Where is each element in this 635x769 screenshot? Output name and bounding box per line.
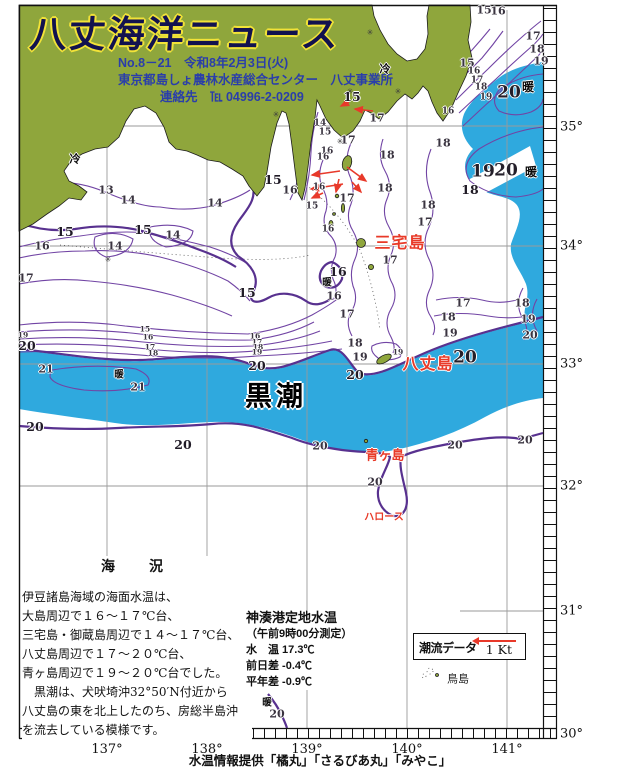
station-marker: ✳ — [337, 138, 344, 146]
contour-label: 17 — [382, 255, 397, 266]
warm-label: 暖 — [522, 81, 534, 93]
data-credit: 水温情報提供「橘丸」「さるびあ丸」「みやこ」 — [100, 750, 540, 769]
report-line: 青ヶ島周辺で１９～２０℃台でした。 — [22, 664, 252, 683]
report-line: 伊豆諸島海域の海面水温は、 — [22, 588, 252, 607]
contour-label: 21 — [130, 382, 145, 393]
warm-label: 暖 — [114, 370, 124, 380]
contour-label: 17 — [339, 193, 354, 204]
island-miyakejima — [357, 239, 366, 248]
contour-label: 17 — [455, 298, 470, 309]
contour-label: 20 — [517, 435, 532, 446]
island-oshima — [341, 155, 354, 172]
island-shikinejima — [333, 213, 336, 216]
current-data-legend: 潮流データ 1 Kt — [413, 633, 526, 660]
island-label-harosu: ハロース — [364, 513, 404, 523]
report-line: 黒潮は、犬吠埼沖32°50′N付近から — [22, 683, 252, 702]
contour-label: 20 — [367, 477, 382, 488]
cold-label: 冷 — [70, 155, 81, 166]
contour-label: 17 — [18, 273, 33, 284]
contour-label: 20 — [269, 709, 284, 720]
report-line: 大島周辺で１６～１７℃台、 — [22, 607, 252, 626]
island-label-miyakejima: 三宅島 — [374, 236, 425, 252]
contour-label: 18 — [347, 338, 362, 349]
contour-label: 16 — [326, 291, 341, 302]
island-label-hachijojima: 八丈島 — [402, 357, 453, 373]
latitude-label: 34° — [560, 239, 583, 254]
island-mikurajima — [368, 264, 373, 269]
island-label-aogashima: 青ヶ島 — [365, 449, 404, 462]
kaminato-body: （午前9時00分測定）水 温 17.3℃前日差 -0.4℃平年差 -0.9℃ — [246, 626, 362, 690]
contour-label: 18 — [420, 200, 435, 211]
sea-condition-report: 海 況 伊豆諸島海域の海面水温は、大島周辺で１６～１７℃台、三宅島・御蔵島周辺で… — [22, 556, 252, 740]
contour-label: 16 — [317, 154, 330, 163]
contour-label: 13 — [98, 185, 113, 196]
contour-label: 18 — [514, 298, 529, 309]
contour-label: 20 — [346, 369, 363, 382]
contour-label: 18 — [379, 150, 394, 161]
contour-label: 18 — [440, 312, 455, 323]
current-scale-value: 1 Kt — [486, 642, 512, 657]
contour-label: 20 — [494, 163, 518, 180]
contour-label: 18 — [435, 138, 450, 149]
contour-label: 20 — [174, 439, 191, 452]
contour-label: 21 — [38, 364, 53, 375]
contour-label: 16 — [143, 333, 153, 341]
contour-label: 19 — [480, 94, 493, 103]
contour-label: 19 — [352, 352, 367, 363]
contour-label: 20 — [453, 350, 477, 367]
contour-label: 17 — [525, 31, 540, 42]
latitude-label: 31° — [560, 604, 583, 619]
contour-label: 19 — [252, 348, 262, 356]
contour-label: 19 — [442, 328, 457, 339]
kaminato-heading: 神湊港定地水温 — [246, 610, 362, 626]
contour-label: 16 — [442, 108, 455, 117]
warm-label: 暖 — [525, 166, 537, 178]
contour-label: 15 — [319, 129, 332, 138]
contour-label: 14 — [120, 195, 135, 206]
contour-label: 16 — [322, 226, 335, 235]
kaminato-line: （午前9時00分測定） — [246, 626, 362, 642]
contour-label: 14 — [107, 241, 122, 252]
station-marker: ✳ — [347, 88, 354, 96]
warm-label: 暖 — [322, 278, 332, 288]
cold-label: 冷 — [380, 65, 391, 76]
page-title: 八丈海洋ニュース — [28, 4, 342, 58]
contour-label: 19 — [520, 314, 535, 325]
report-line: 八丈島の東を北上したのち、房総半島沖 — [22, 702, 252, 721]
island-label-torishima: 鳥島 — [447, 674, 469, 685]
latitude-label: 33° — [560, 357, 583, 372]
contour-label: 19 — [471, 164, 495, 181]
contour-label: 14 — [207, 198, 222, 209]
contour-label: 15 — [306, 203, 319, 212]
contour-label: 20 — [18, 340, 35, 353]
report-line: 八丈島周辺で１７～２０℃台、 — [22, 645, 252, 664]
kaminato-water-temp-block: 神湊港定地水温 （午前9時00分測定）水 温 17.3℃前日差 -0.4℃平年差… — [246, 610, 362, 690]
contour-label: 18 — [461, 184, 478, 197]
kuroshio-label: 黒潮 — [245, 384, 307, 411]
contour-label: 16 — [313, 184, 326, 193]
contour-label: 16 — [490, 6, 505, 17]
newsletter-page: 八丈海洋ニュース No.8－21 令和8年2月3日(火) 東京都島しょ農林水産総… — [0, 0, 635, 769]
contour-label: 18 — [475, 84, 488, 93]
contour-label: 18 — [529, 44, 544, 55]
contour-label: 15 — [264, 174, 281, 187]
contour-label: 16 — [34, 241, 49, 252]
contour-label: 20 — [248, 360, 265, 373]
contour-label: 17 — [417, 217, 432, 228]
latitude-label: 32° — [560, 479, 583, 494]
station-marker: ✳ — [105, 256, 112, 264]
island-torishima — [436, 674, 439, 677]
contour-label: 15 — [238, 287, 255, 300]
island-aogashima — [364, 439, 367, 442]
latitude-label: 35° — [560, 120, 583, 135]
current-data-label: 潮流データ — [419, 639, 477, 656]
contact-phone: 連絡先 ℡ 04996-2-0209 — [160, 86, 304, 105]
report-body: 伊豆諸島海域の海面水温は、大島周辺で１６～１７℃台、三宅島・御蔵島周辺で１４～１… — [22, 588, 252, 740]
latitude-label: 30° — [560, 727, 583, 742]
kaminato-line: 前日差 -0.4℃ — [246, 658, 362, 674]
sea-condition-heading: 海 況 — [22, 556, 252, 576]
report-line: 三宅島・御蔵島周辺で１４～１７℃台、 — [22, 626, 252, 645]
contour-label: 20 — [312, 441, 327, 452]
station-marker: ✳ — [273, 111, 280, 119]
contour-label: 15 — [134, 224, 151, 237]
contour-label: 20 — [522, 330, 537, 341]
contour-label: 20 — [26, 421, 43, 434]
contour-label: 20 — [447, 440, 462, 451]
contour-label: 18 — [148, 349, 158, 357]
report-line: を流去している模様です。 — [22, 721, 252, 740]
contour-label: 14 — [165, 230, 180, 241]
contour-label: 17 — [339, 309, 354, 320]
kaminato-line: 平年差 -0.9℃ — [246, 674, 362, 690]
contour-label: 19 — [393, 348, 403, 356]
contour-label: 17 — [369, 113, 384, 124]
station-marker: ✳ — [367, 29, 374, 37]
kaminato-line: 水 温 17.3℃ — [246, 642, 362, 658]
island-toshima — [335, 194, 339, 198]
warm-label: 暖 — [262, 698, 272, 708]
island-niijima — [341, 204, 344, 213]
contour-label: 18 — [377, 183, 392, 194]
contour-label: 19 — [533, 56, 548, 67]
contour-label: 16 — [282, 185, 297, 196]
station-marker: ✳ — [395, 88, 402, 96]
contour-label: 15 — [56, 226, 73, 239]
contour-label: 20 — [497, 85, 521, 102]
